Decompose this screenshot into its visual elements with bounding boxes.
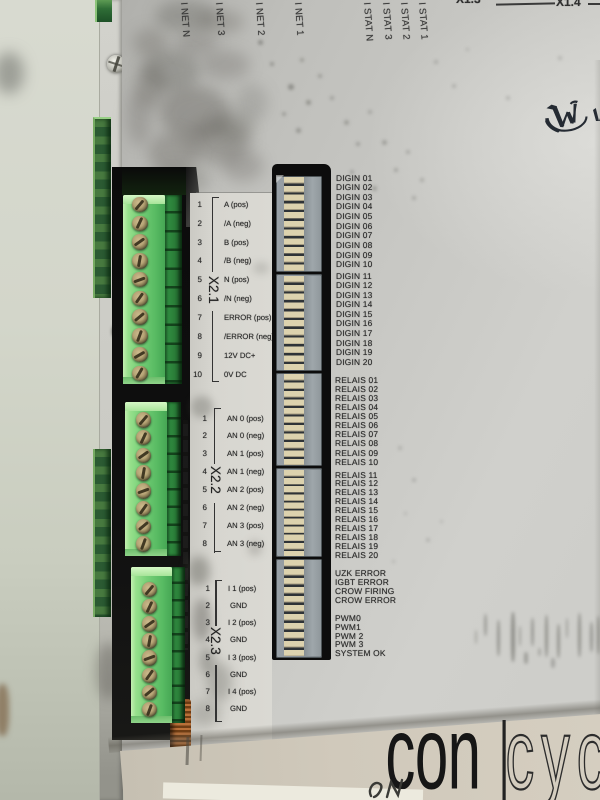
svg-text:cyc: cyc xyxy=(505,706,600,800)
